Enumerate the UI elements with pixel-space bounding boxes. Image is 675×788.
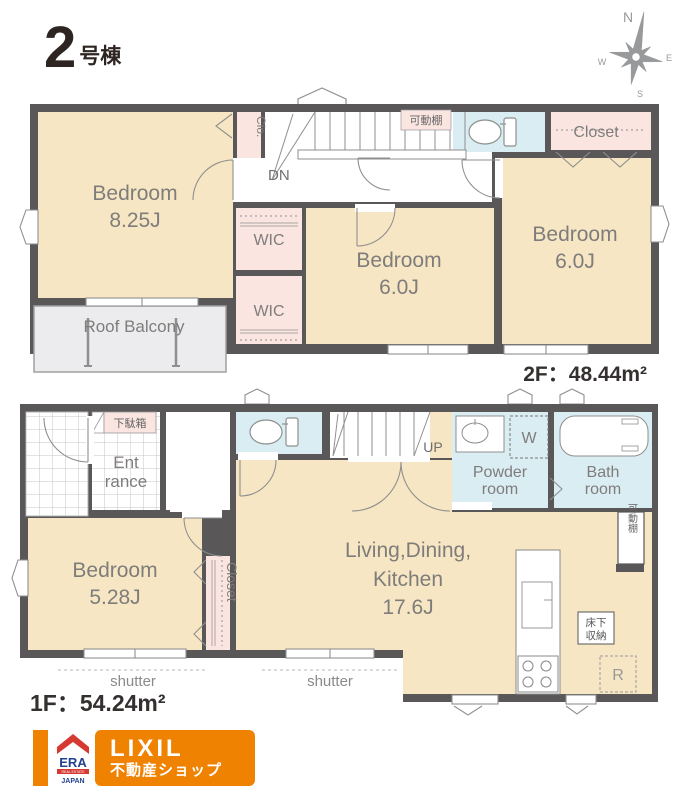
compass-east-label: E <box>666 53 672 63</box>
bedroom-1f-label: Bedroom <box>72 559 157 582</box>
roof-vents-1f <box>245 389 584 404</box>
bedroom-1f-size: 5.28J <box>89 586 140 609</box>
closet-2f-label: Closet <box>573 124 619 141</box>
compass-icon: N E W S <box>598 7 672 99</box>
room-hall-1f <box>166 412 230 510</box>
era-country: JAPAN <box>61 778 84 785</box>
floor1-area-floor: 1F <box>30 690 57 716</box>
floor1-area-separator: ： <box>57 690 80 716</box>
toilet-icon-1f <box>250 418 298 446</box>
underfloor-label-1: 床下 <box>586 616 607 629</box>
bedroom-main-label: Bedroom <box>92 182 177 205</box>
movable-shelf-2f-label: 可動棚 <box>410 113 443 127</box>
floor2-area-separator: ： <box>548 363 569 386</box>
sink-icon <box>456 416 504 452</box>
movable-shelf-1f-label: 可動棚 <box>626 503 638 534</box>
room-bedroom-1f <box>28 518 202 650</box>
bedroom-main-size: 8.25J <box>109 209 160 232</box>
floor1-area-label: 1F：54.24m² <box>30 684 166 718</box>
floor2-area-label: 2F：48.44m² <box>523 358 647 388</box>
bedroom-center-label: Bedroom <box>356 249 441 272</box>
stove-icon <box>518 656 558 692</box>
floor2-area-value: 48.44 <box>569 363 622 386</box>
era-house-icon <box>57 734 89 754</box>
bath-room-label-1: Bath <box>587 464 620 481</box>
compass-north-label: N <box>623 9 633 25</box>
clo-label: Clo. <box>254 116 268 137</box>
floorplan-page: 2 号棟 N E W S <box>0 0 675 788</box>
ldk-size: 17.6J <box>382 596 433 619</box>
entrance-label-1: Ent <box>113 453 139 472</box>
powder-room-label-2: room <box>482 481 518 498</box>
bedroom-right-label: Bedroom <box>532 223 617 246</box>
floor1-plan: Ent rance 下駄箱 UP Bedroom 5.28J Living,Di… <box>12 389 658 715</box>
bedroom-right-size: 6.0J <box>555 250 595 273</box>
shoe-box-label: 下駄箱 <box>114 416 147 430</box>
stairs-dn-label: DN <box>268 167 290 184</box>
stairs-up-label: UP <box>423 439 442 455</box>
floor2-area-floor: 2F <box>523 363 548 386</box>
closet-1f-label: Closet <box>224 562 240 602</box>
shutter-center-label: shutter <box>307 673 353 690</box>
lixil-name: LIXIL <box>110 737 255 761</box>
compass-south-label: S <box>637 89 643 99</box>
roof-balcony <box>34 306 226 372</box>
bathtub-icon <box>560 416 648 456</box>
washer-label: W <box>521 430 537 447</box>
ldk-label-1: Living,Dining, <box>345 539 471 562</box>
lixil-sub: 不動産ショップ <box>110 761 255 781</box>
era-tagline: REAL ESTATE <box>61 770 85 774</box>
bath-room-label-2: room <box>585 481 621 498</box>
room-bedroom-main <box>38 112 233 298</box>
powder-room-label-1: Powder <box>473 464 528 481</box>
roof-balcony-label: Roof Balcony <box>83 317 185 336</box>
refrigerator-label: R <box>612 667 624 684</box>
orange-accent-bar <box>33 730 48 786</box>
stairs-area-1f <box>330 412 430 458</box>
lixil-logo: LIXIL 不動産ショップ <box>95 730 255 786</box>
kitchen-counter <box>516 550 560 694</box>
floorplan-drawing: N E W S <box>0 0 675 788</box>
toilet-icon-2f <box>469 118 516 146</box>
floor1-area-unit: m² <box>137 690 165 716</box>
floor2-area-unit: m² <box>621 363 647 386</box>
era-logo: ERA REAL ESTATE JAPAN <box>54 733 92 785</box>
era-name: ERA <box>59 755 87 770</box>
wic-upper-label: WIC <box>253 232 284 249</box>
underfloor-label-2: 収納 <box>586 629 607 642</box>
ldk-label-2: Kitchen <box>373 568 443 591</box>
entrance-label-2: rance <box>105 472 148 491</box>
floor1-area-value: 54.24 <box>80 690 138 716</box>
compass-west-label: W <box>598 57 607 67</box>
wic-lower-label: WIC <box>253 303 284 320</box>
floor2-plan: Bedroom 8.25J Bedroom 6.0J Bedroom 6.0J … <box>20 88 669 372</box>
bedroom-center-size: 6.0J <box>379 276 419 299</box>
